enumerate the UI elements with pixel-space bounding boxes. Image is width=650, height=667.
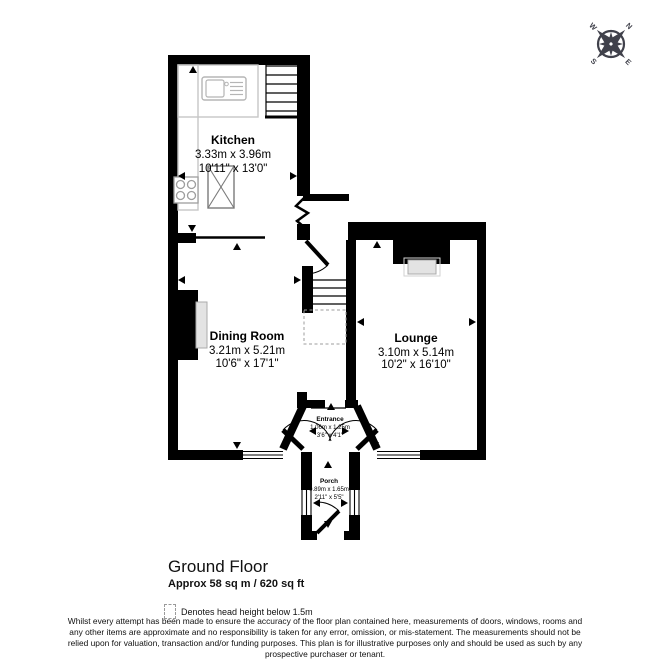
window-dining-south xyxy=(243,452,283,459)
bifold-door xyxy=(296,198,308,227)
arrow-left xyxy=(178,276,185,284)
dining-imperial: 10'6" x 17'1" xyxy=(215,358,278,370)
wall-segment xyxy=(346,240,356,408)
wall-segment xyxy=(477,240,486,460)
disclaimer-line: any other items are approximate and no r… xyxy=(0,627,650,638)
porch-imperial: 2'11" x 5'5" xyxy=(314,495,343,501)
arrow-up xyxy=(324,461,332,468)
floor-plan-drawing: Kitchen 3.33m x 3.96m 10'11" x 13'0" Din… xyxy=(0,0,650,667)
compass-south: S xyxy=(589,56,599,66)
porch-label: Porch xyxy=(320,478,338,485)
wall-segment xyxy=(168,55,178,460)
kitchen-hob xyxy=(174,177,198,203)
wall-segment xyxy=(297,55,310,196)
window-porch-west xyxy=(302,490,311,515)
kitchen-metric: 3.33m x 3.96m xyxy=(195,149,271,161)
window-lounge-south xyxy=(377,452,420,459)
arrow-right xyxy=(290,172,297,180)
arrow-right xyxy=(294,276,301,284)
disclaimer-line: prospective purchaser or tenant. xyxy=(0,649,650,660)
entrance-metric: 1.06m x 1.25m xyxy=(310,425,350,431)
kitchen-sink xyxy=(202,77,246,100)
floor-title: Ground Floor xyxy=(168,557,268,577)
arrow-right xyxy=(469,318,476,326)
head-height-area xyxy=(304,310,346,344)
staircase-lower xyxy=(313,280,346,304)
lounge-label: Lounge xyxy=(394,331,438,345)
wall-segment xyxy=(168,55,310,65)
arrow-down xyxy=(233,442,241,449)
compass-east: E xyxy=(623,57,633,67)
entrance-imperial: 3'6" x 4'1" xyxy=(317,433,343,439)
staircase-upper xyxy=(265,56,298,117)
wall-segment xyxy=(303,194,349,201)
floor-plan-page: Kitchen 3.33m x 3.96m 10'11" x 13'0" Din… xyxy=(0,0,650,667)
compass-north: N xyxy=(624,21,634,31)
arrow-left xyxy=(357,318,364,326)
legend-text: Denotes head height below 1.5m xyxy=(181,607,313,617)
entrance-label: Entrance xyxy=(316,416,344,423)
porch-metric: 0.89m x 1.65m xyxy=(309,487,349,493)
arrow-down xyxy=(188,225,196,232)
kitchen-imperial: 10'11" x 13'0" xyxy=(199,163,268,175)
compass-west: W xyxy=(587,21,599,33)
wall-segment xyxy=(301,531,317,540)
wall-segment xyxy=(301,452,312,490)
arrow-up xyxy=(189,66,197,73)
kitchen-label: Kitchen xyxy=(211,133,255,147)
dining-label: Dining Room xyxy=(210,329,285,343)
chimney-breast-dining xyxy=(168,290,198,360)
disclaimer-line: Whilst every attempt has been made to en… xyxy=(0,616,650,627)
compass-rose-icon: N E S W xyxy=(570,3,650,84)
wall-segment xyxy=(349,452,360,490)
wall-segment xyxy=(420,450,486,460)
disclaimer: Whilst every attempt has been made to en… xyxy=(0,616,650,660)
door-porch xyxy=(317,502,339,533)
arrow-up xyxy=(327,403,335,410)
dining-metric: 3.21m x 5.21m xyxy=(209,345,285,357)
window-porch-east xyxy=(350,490,359,515)
fireplace-dining xyxy=(196,302,207,348)
wall-segment xyxy=(344,531,360,540)
wall-segment xyxy=(168,450,243,460)
arrow-up xyxy=(373,241,381,248)
lounge-imperial: 10'2" x 16'10" xyxy=(381,359,450,371)
wall-segment xyxy=(168,233,196,243)
fireplace-lounge xyxy=(404,258,440,276)
floor-area: Approx 58 sq m / 620 sq ft xyxy=(168,578,304,590)
disclaimer-line: relied upon for valuation, transaction a… xyxy=(0,638,650,649)
lounge-metric: 3.10m x 5.14m xyxy=(378,347,454,359)
arrow-up xyxy=(233,243,241,250)
